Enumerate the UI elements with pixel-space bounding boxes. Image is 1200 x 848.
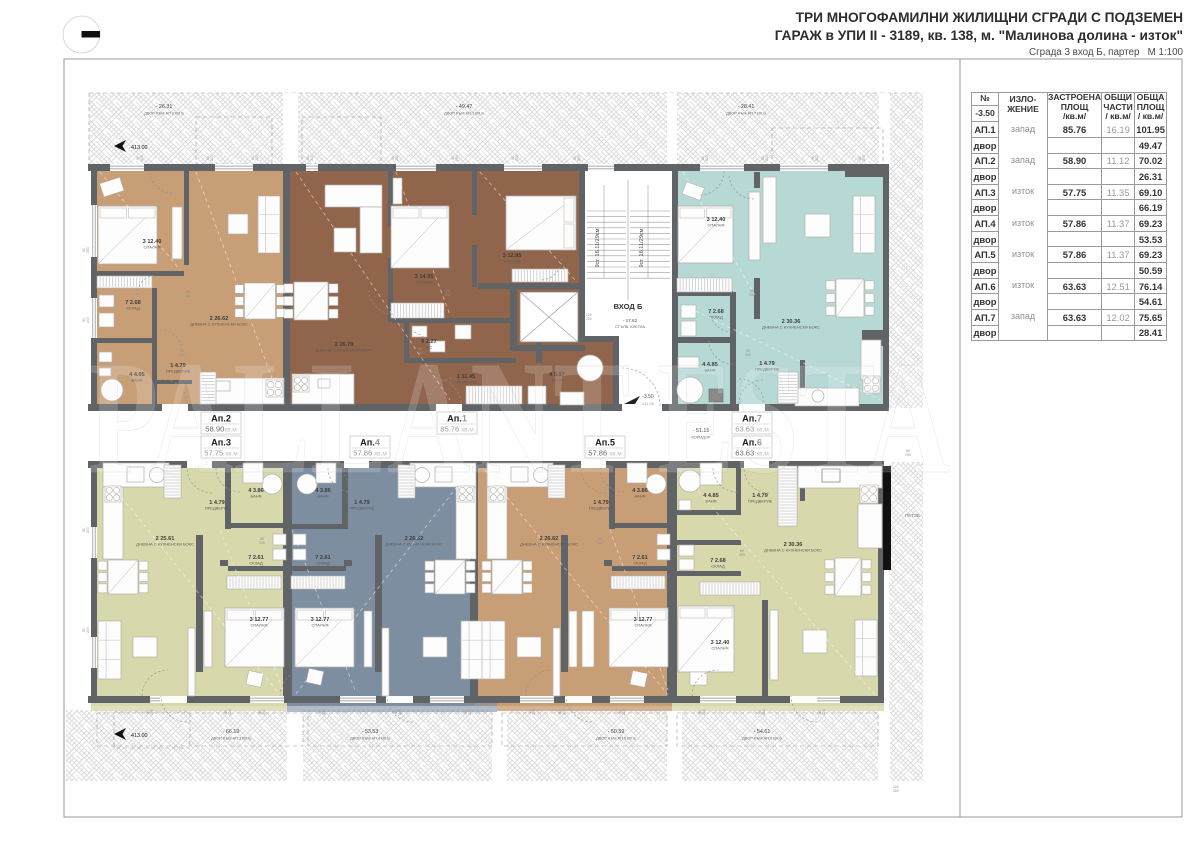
svg-text:ДВОР КЪМ АП.1 ВХ.Б: ДВОР КЪМ АП.1 ВХ.Б	[444, 111, 484, 116]
svg-text:200: 200	[86, 527, 90, 533]
svg-text:200: 200	[86, 627, 90, 633]
svg-text:200: 200	[398, 709, 402, 715]
svg-text:413.00: 413.00	[131, 145, 148, 151]
svg-text:200: 200	[150, 709, 154, 715]
svg-text:Ап.4: Ап.4	[360, 438, 381, 448]
svg-text:58.90кв.м: 58.90кв.м	[205, 425, 236, 434]
svg-text:Ап.2: Ап.2	[211, 414, 231, 424]
svg-text:Ап.1: Ап.1	[447, 414, 467, 424]
svg-text:СПАЛНЯ: СПАЛНЯ	[251, 623, 268, 628]
svg-text:- 26.31: - 26.31	[156, 104, 173, 110]
svg-text:413.00: 413.00	[131, 733, 148, 739]
svg-text:200: 200	[739, 553, 745, 557]
svg-text:СПАЛНЯ: СПАЛНЯ	[312, 623, 329, 628]
svg-text:200: 200	[255, 155, 259, 161]
svg-text:200: 200	[822, 709, 826, 715]
svg-text:200: 200	[515, 155, 519, 161]
svg-text:ДНЕВНА С КУХНЕНСКИ БОКС: ДНЕВНА С КУХНЕНСКИ БОКС	[764, 548, 822, 553]
svg-text:ДНЕВНА С КУХНЕНСКИ БОКС: ДНЕВНА С КУХНЕНСКИ БОКС	[190, 322, 248, 327]
svg-text:200: 200	[577, 155, 581, 161]
svg-text:63.63 кв.м: 63.63 кв.м	[735, 425, 769, 434]
svg-text:200: 200	[622, 709, 626, 715]
svg-text:200: 200	[765, 155, 769, 161]
svg-text:85.76 кв.м: 85.76 кв.м	[440, 425, 474, 434]
svg-text:- 53.53: - 53.53	[362, 729, 379, 735]
svg-text:ДВОР КЪМ АП.5 ВХ.Б: ДВОР КЪМ АП.5 ВХ.Б	[596, 736, 636, 741]
svg-text:200: 200	[749, 293, 755, 297]
svg-text:250: 250	[86, 247, 90, 253]
svg-text:200: 200	[445, 293, 451, 297]
svg-text:СКЛАД: СКЛАД	[711, 564, 725, 569]
svg-text:СКЛАД: СКЛАД	[316, 561, 330, 566]
svg-text:СКЛАД: СКЛАД	[249, 561, 263, 566]
svg-text:ДВОР КЪМ АП.3 ВХ.Б: ДВОР КЪМ АП.3 ВХ.Б	[211, 736, 251, 741]
svg-text:200: 200	[815, 155, 819, 161]
svg-text:200: 200	[586, 317, 592, 321]
svg-text:200: 200	[210, 155, 214, 161]
svg-text:200: 200	[762, 709, 766, 715]
svg-text:СПАЛНЯ: СПАЛНЯ	[144, 245, 161, 250]
svg-text:- 50.59: - 50.59	[608, 729, 625, 735]
svg-text:Ап.5: Ап.5	[595, 438, 615, 448]
svg-text:ДВОР КЪМ АП.6 ВХ.Б: ДВОР КЪМ АП.6 ВХ.Б	[742, 736, 782, 741]
svg-text:200: 200	[395, 155, 399, 161]
svg-text:57.75 кв.м: 57.75 кв.м	[204, 449, 238, 458]
svg-text:9ст. 16.11/29см: 9ст. 16.11/29см	[639, 228, 645, 267]
svg-text:СПАЛНЯ: СПАЛНЯ	[416, 280, 433, 285]
svg-text:Ап.6: Ап.6	[742, 438, 762, 448]
svg-text:57.86 кв.м: 57.86 кв.м	[353, 449, 387, 458]
svg-text:- 17.62: - 17.62	[623, 318, 638, 323]
svg-text:200: 200	[532, 709, 536, 715]
svg-text:200: 200	[259, 541, 265, 545]
svg-text:ВХОД Б: ВХОД Б	[614, 302, 643, 311]
svg-text:200: 200	[86, 317, 90, 323]
svg-text:- 54.61: - 54.61	[754, 729, 771, 735]
svg-text:СПАЛНЯ: СПАЛНЯ	[504, 259, 521, 264]
svg-text:СКЛАД: СКЛАД	[633, 561, 647, 566]
svg-text:200: 200	[468, 709, 472, 715]
svg-text:Ап.7: Ап.7	[742, 414, 762, 424]
svg-text:200: 200	[705, 155, 709, 161]
svg-text:200: 200	[597, 541, 603, 545]
svg-text:200: 200	[140, 155, 144, 161]
svg-text:63.63 кв.м: 63.63 кв.м	[735, 449, 769, 458]
svg-text:200: 200	[310, 155, 314, 161]
svg-text:200: 200	[702, 709, 706, 715]
svg-text:57.86 кв.м: 57.86 кв.м	[588, 449, 622, 458]
svg-text:ДНЕВНА С КУХНЕНСКИ БОКС: ДНЕВНА С КУХНЕНСКИ БОКС	[136, 542, 194, 547]
svg-text:200: 200	[185, 294, 191, 298]
svg-text:- 28.41: - 28.41	[738, 104, 755, 110]
svg-text:200: 200	[862, 155, 866, 161]
svg-text:ДВОР КЪМ АП.2 ВХ.Б: ДВОР КЪМ АП.2 ВХ.Б	[144, 111, 184, 116]
svg-text:ДВОР КЪМ АП.4 ВХ.Б: ДВОР КЪМ АП.4 ВХ.Б	[350, 736, 390, 741]
svg-text:Ап.3: Ап.3	[211, 438, 231, 448]
svg-text:200: 200	[322, 709, 326, 715]
svg-text:200: 200	[562, 709, 566, 715]
svg-text:СПАЛНЯ: СПАЛНЯ	[635, 623, 652, 628]
svg-text:- 49.47: - 49.47	[456, 104, 473, 110]
svg-text:СПАЛНЯ: СПАЛНЯ	[712, 646, 729, 651]
svg-text:- 66.19: - 66.19	[223, 729, 240, 735]
svg-text:9ст. 16.11/29см: 9ст. 16.11/29см	[595, 228, 601, 267]
svg-text:СКЛАД: СКЛАД	[126, 306, 140, 311]
svg-text:200: 200	[455, 155, 459, 161]
svg-text:СПАЛНЯ: СПАЛНЯ	[708, 223, 725, 228]
svg-text:ПЕТЗБ: ПЕТЗБ	[905, 513, 920, 518]
svg-text:ДВОР КЪМ АП.7 ВХ.Б: ДВОР КЪМ АП.7 ВХ.Б	[726, 111, 766, 116]
svg-text:200: 200	[262, 709, 266, 715]
svg-text:300: 300	[893, 789, 899, 793]
svg-text:200: 200	[349, 541, 355, 545]
svg-text:200: 200	[228, 709, 232, 715]
svg-text:ДНЕВНА С КУХНЕНСКИ БОКС: ДНЕВНА С КУХНЕНСКИ БОКС	[520, 542, 578, 547]
